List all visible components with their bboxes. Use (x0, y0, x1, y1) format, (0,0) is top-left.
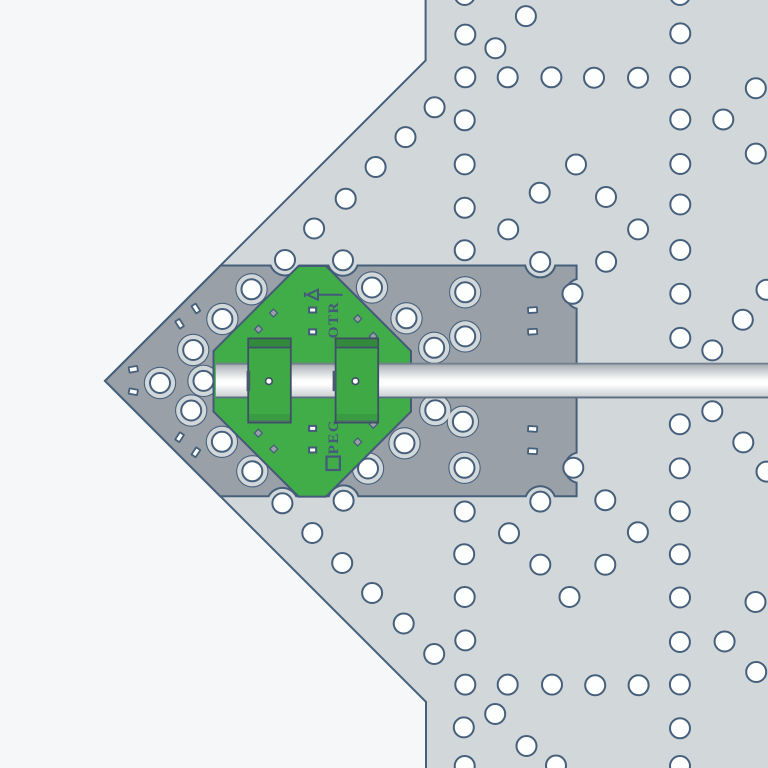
svg-text:OTR: OTR (325, 301, 342, 338)
svg-text:PEG: PEG (325, 419, 342, 455)
